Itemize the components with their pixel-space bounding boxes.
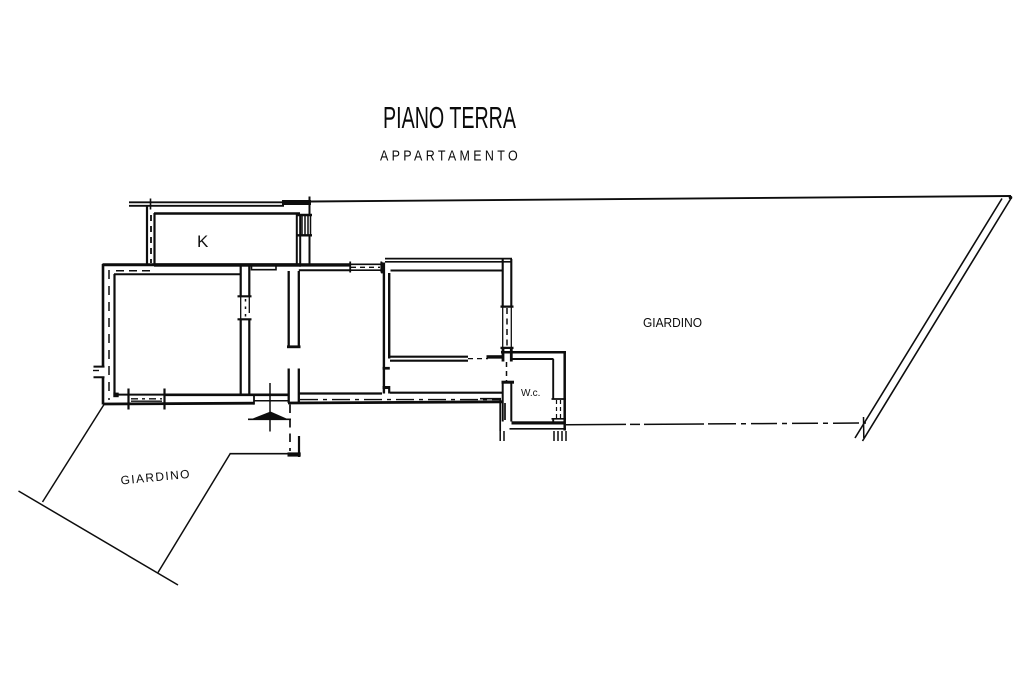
svg-text:GIARDINO: GIARDINO <box>643 316 702 330</box>
svg-text:APPARTAMENTO: APPARTAMENTO <box>380 148 521 165</box>
svg-text:W.c.: W.c. <box>521 388 540 399</box>
svg-text:PIANO TERRA: PIANO TERRA <box>383 100 516 135</box>
svg-text:K: K <box>197 232 209 251</box>
svg-text:GIARDINO: GIARDINO <box>120 467 192 488</box>
